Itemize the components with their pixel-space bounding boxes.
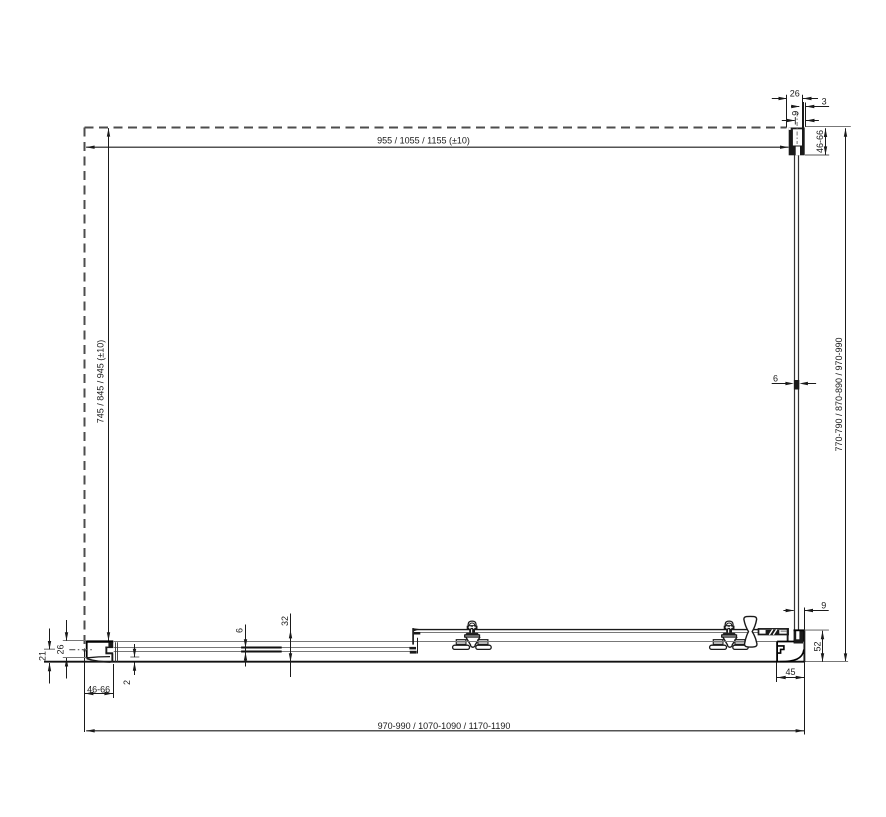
svg-text:26: 26 [55, 644, 65, 654]
svg-text:770-790 / 870-890 / 970-990: 770-790 / 870-890 / 970-990 [834, 337, 844, 451]
svg-text:21: 21 [38, 651, 48, 661]
svg-text:745 / 845 / 945 (±10): 745 / 845 / 945 (±10) [96, 340, 106, 424]
svg-text:9: 9 [821, 601, 826, 611]
svg-text:2: 2 [122, 680, 132, 685]
svg-text:52: 52 [812, 641, 822, 651]
svg-text:6: 6 [234, 628, 244, 633]
svg-text:26: 26 [790, 88, 800, 98]
svg-text:32: 32 [280, 616, 290, 626]
svg-text:955 / 1055 / 1155 (±10): 955 / 1055 / 1155 (±10) [377, 135, 470, 145]
svg-text:9: 9 [791, 111, 801, 116]
svg-text:3: 3 [822, 97, 827, 107]
svg-text:6: 6 [773, 374, 778, 384]
svg-text:970-990 / 1070-1090 / 1170-119: 970-990 / 1070-1090 / 1170-1190 [378, 721, 511, 731]
svg-text:45: 45 [785, 667, 795, 677]
svg-text:46-66: 46-66 [87, 684, 110, 694]
svg-text:46-66: 46-66 [815, 130, 825, 153]
